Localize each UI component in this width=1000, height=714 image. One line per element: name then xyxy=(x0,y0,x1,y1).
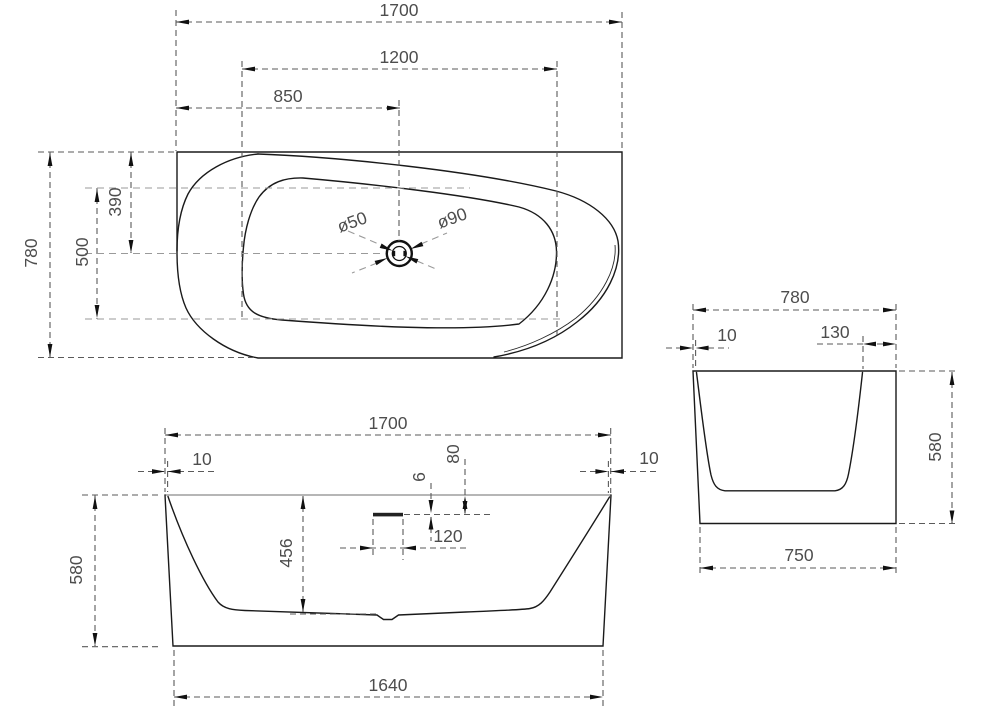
front-dim-slot-width: 120 xyxy=(433,526,462,546)
plan-dim-drain-large: ø90 xyxy=(434,203,469,232)
plan-dim-basin-length: 1200 xyxy=(380,47,419,67)
side-dim-overall-height: 580 xyxy=(925,432,945,461)
technical-drawing-page: 1700 1200 850 780 500 390 ø50 ø90 xyxy=(0,0,1000,714)
front-dim-rim-left: 10 xyxy=(192,449,212,469)
overflow-slot xyxy=(373,513,403,517)
plan-view: 1700 1200 850 780 500 390 ø50 ø90 xyxy=(21,0,622,358)
side-view: 780 10 130 580 750 xyxy=(666,287,958,575)
drain-waste-fitting xyxy=(387,241,412,266)
bathtub-dimension-drawing: 1700 1200 850 780 500 390 ø50 ø90 xyxy=(0,0,1000,714)
front-dim-overall-height: 580 xyxy=(66,555,86,584)
front-dim-slot-height: 6 xyxy=(409,472,429,482)
side-outline xyxy=(693,371,896,524)
plan-dim-drain-centerline: 390 xyxy=(105,187,125,216)
front-dim-overflow-drop: 80 xyxy=(443,444,463,464)
side-basin-profile xyxy=(697,373,863,491)
plan-dim-overall-length: 1700 xyxy=(380,0,419,20)
front-dim-rim-right: 10 xyxy=(639,448,659,468)
plan-rim-edge-detail xyxy=(504,245,615,352)
front-outline xyxy=(165,495,611,646)
front-dim-overall-length: 1700 xyxy=(369,413,408,433)
plan-outer-rim-left-arc xyxy=(177,154,258,251)
front-view: 1700 10 10 80 6 120 456 580 1640 xyxy=(66,413,659,708)
plan-dim-drain-small: ø50 xyxy=(334,207,369,236)
plan-dim-drain-offset: 850 xyxy=(273,86,302,106)
side-dim-overall-width: 780 xyxy=(780,287,809,307)
plan-dim-overall-width: 780 xyxy=(21,238,41,267)
side-dim-rim-inner: 130 xyxy=(820,322,849,342)
front-dim-base-length: 1640 xyxy=(369,675,408,695)
plan-dim-basin-width: 500 xyxy=(72,237,92,266)
side-dim-base-width: 750 xyxy=(784,545,813,565)
dimension-arrowheads xyxy=(48,20,955,700)
side-dim-rim-edge: 10 xyxy=(717,325,737,345)
front-dim-inner-depth: 456 xyxy=(276,538,296,567)
